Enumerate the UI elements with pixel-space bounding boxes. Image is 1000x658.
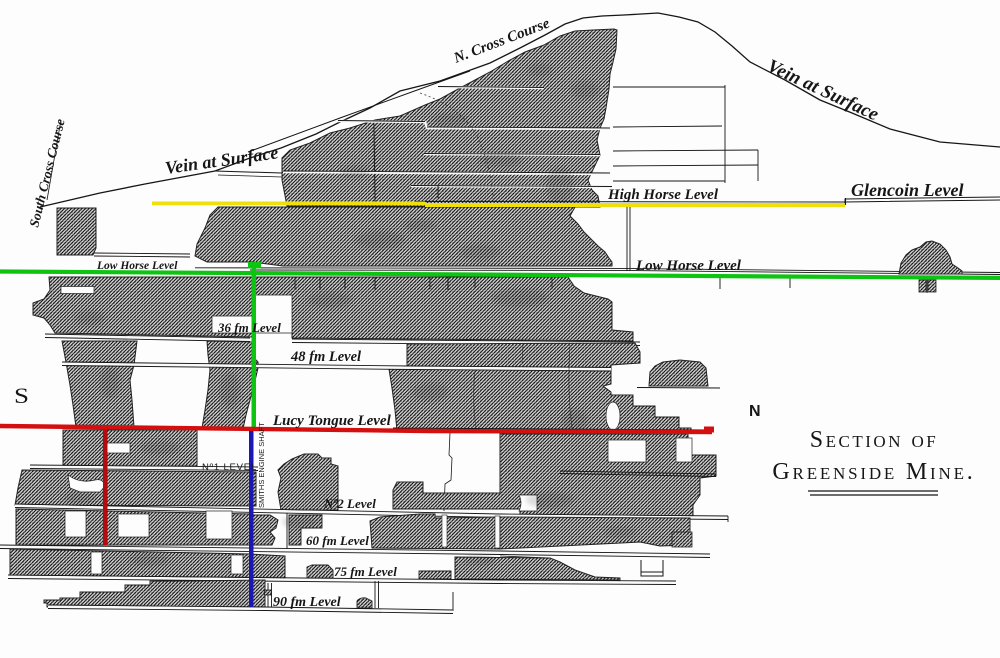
svg-text:N: N [749,403,761,420]
svg-text:90 fm Level: 90 fm Level [273,595,341,610]
svg-text:Low Horse Level: Low Horse Level [635,258,742,274]
svg-text:Lucy Tongue Level: Lucy Tongue Level [272,413,392,429]
svg-text:Section of: Section of [810,427,938,453]
svg-text:75 fm Level: 75 fm Level [334,564,397,579]
svg-text:Nº1 LEVEL: Nº1 LEVEL [202,462,257,473]
svg-text:Vein at Surface: Vein at Surface [764,55,882,125]
svg-text:Low Horse Level: Low Horse Level [96,260,178,272]
svg-text:36 fm Level: 36 fm Level [217,320,281,335]
svg-text:Nº2 Level: Nº2 Level [323,496,376,511]
svg-text:S: S [14,383,29,408]
svg-text:60 fm Level: 60 fm Level [306,533,369,548]
svg-text:High Horse Level: High Horse Level [607,187,719,203]
svg-text:SMITHS ENGINE SHAFT: SMITHS ENGINE SHAFT [257,422,266,508]
svg-text:Glencoin Level: Glencoin Level [851,180,963,200]
svg-text:48 fm Level: 48 fm Level [290,349,361,365]
svg-text:Greenside Mine.: Greenside Mine. [772,459,975,485]
